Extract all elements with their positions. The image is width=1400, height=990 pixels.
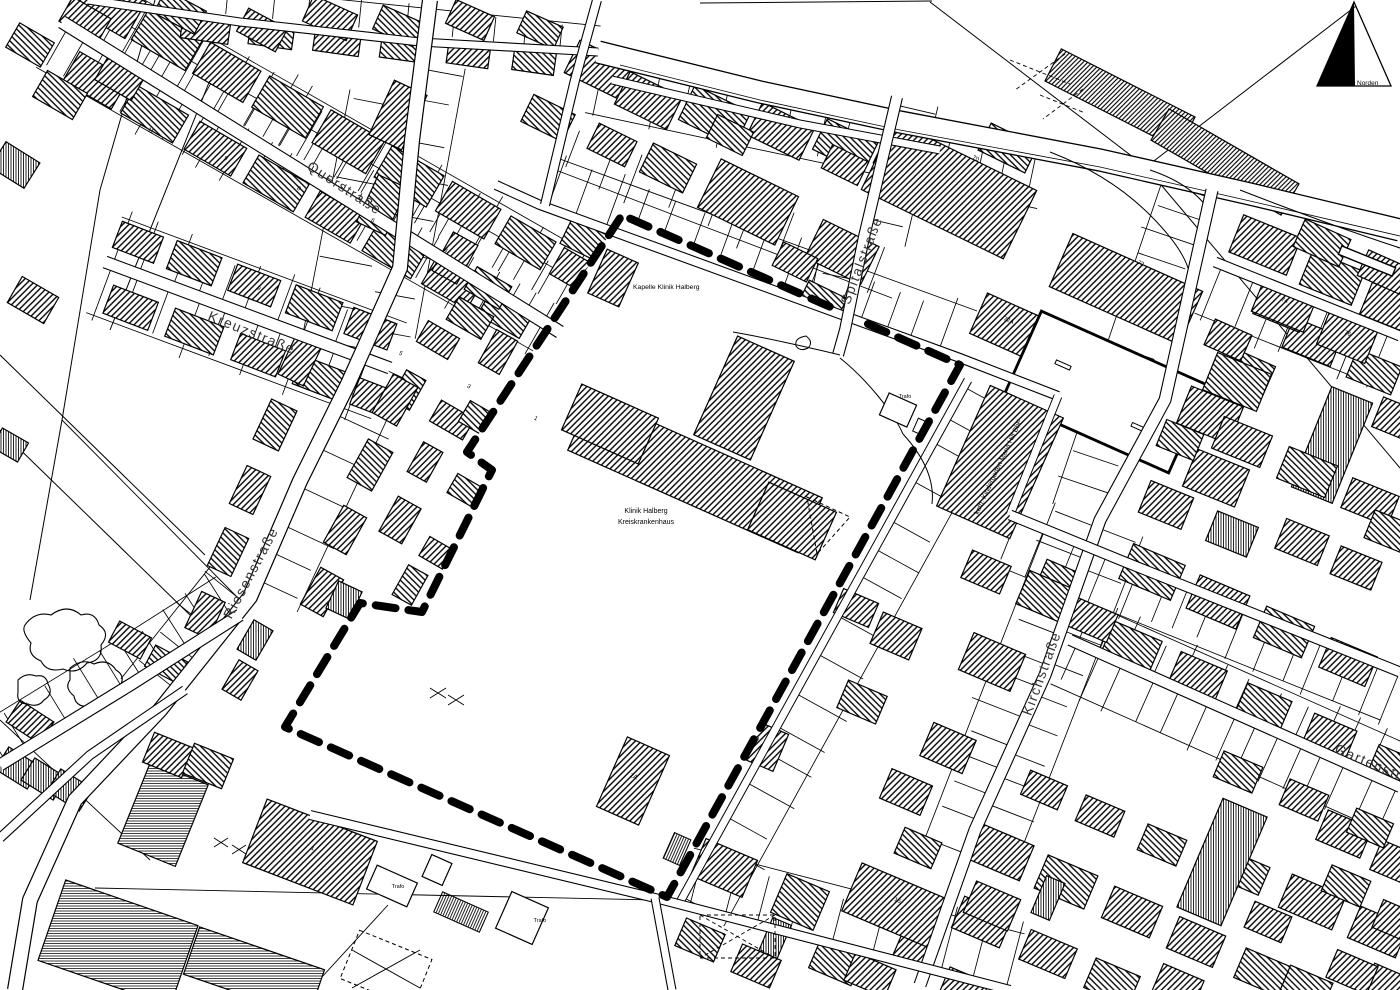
svg-text:Klinik Halberg: Klinik Halberg <box>624 508 667 515</box>
svg-text:Kreiskrankenhaus: Kreiskrankenhaus <box>618 519 675 526</box>
svg-text:Trafo: Trafo <box>392 884 405 890</box>
svg-text:Trafo: Trafo <box>899 394 912 400</box>
svg-text:Kapelle Klinik Halberg: Kapelle Klinik Halberg <box>633 284 700 291</box>
svg-text:Norden: Norden <box>1357 80 1379 87</box>
svg-text:Trafo: Trafo <box>534 918 547 924</box>
